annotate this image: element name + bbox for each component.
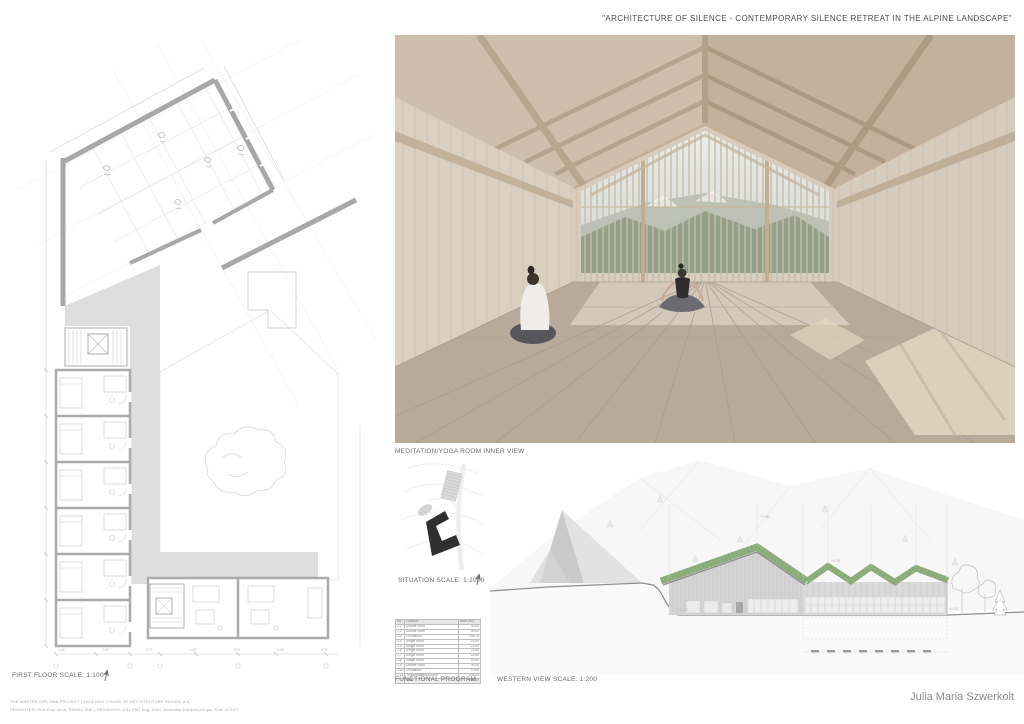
first-floor-label: FIRST FLOOR SCALE: 1:100	[12, 672, 104, 679]
svg-text:+0.00: +0.00	[679, 608, 688, 612]
guest-rooms-left	[56, 370, 130, 646]
svg-text:+7.45: +7.45	[760, 515, 769, 519]
plan-dimension-numbers: 4.802.003.704.002.042.004.00	[58, 648, 328, 652]
rooms-bottom-strip	[148, 578, 328, 638]
render-caption: MEDITATION/YOGA ROOM INNER VIEW	[395, 448, 525, 455]
western-elevation-drawing: +7.45 +4.95 +0.00 +0.00	[490, 460, 1024, 675]
contour-lines	[402, 464, 484, 554]
first-floor-plan-drawing	[8, 40, 388, 675]
retreat-footprint	[426, 511, 460, 556]
situation-plan-drawing	[398, 458, 486, 576]
functional-program-table: No.FunctionArea [m2] 1.1 Double room 30.…	[395, 619, 481, 684]
svg-text:+0.00: +0.00	[949, 607, 958, 611]
north-arrow-icon	[472, 573, 484, 587]
north-arrow-icon	[100, 669, 112, 683]
functional-program: No.FunctionArea [m2] 1.1 Double room 30.…	[395, 619, 481, 684]
tree-plan	[205, 427, 285, 496]
stairs-upper	[65, 328, 127, 366]
courtyard-outline	[160, 310, 338, 580]
functional-program-label: FUNCTIONAL PROGRAM	[395, 676, 476, 683]
footer-project-line: THE MASTER DIPLOMA PROJECT | 2023/2024 |…	[10, 699, 189, 704]
footer-promoter-line: PROMOTER: PhD Eng. Arch. PAWEL ZUK | REV…	[10, 707, 238, 712]
author-name: Julia Maria Szwerkolt	[910, 691, 1014, 703]
meditation-room-render	[395, 35, 1015, 443]
green-hills	[581, 211, 829, 282]
poster-title: "ARCHITECTURE OF SILENCE - CONTEMPORARY …	[602, 14, 1012, 23]
pond	[416, 502, 434, 519]
svg-text:+4.95: +4.95	[831, 559, 840, 563]
plan-figure-sketches	[103, 133, 244, 210]
hall-walls	[63, 80, 356, 306]
western-view-label: WESTERN VIEW SCALE: 1:200	[497, 676, 597, 683]
pavilion-outline	[248, 272, 296, 328]
